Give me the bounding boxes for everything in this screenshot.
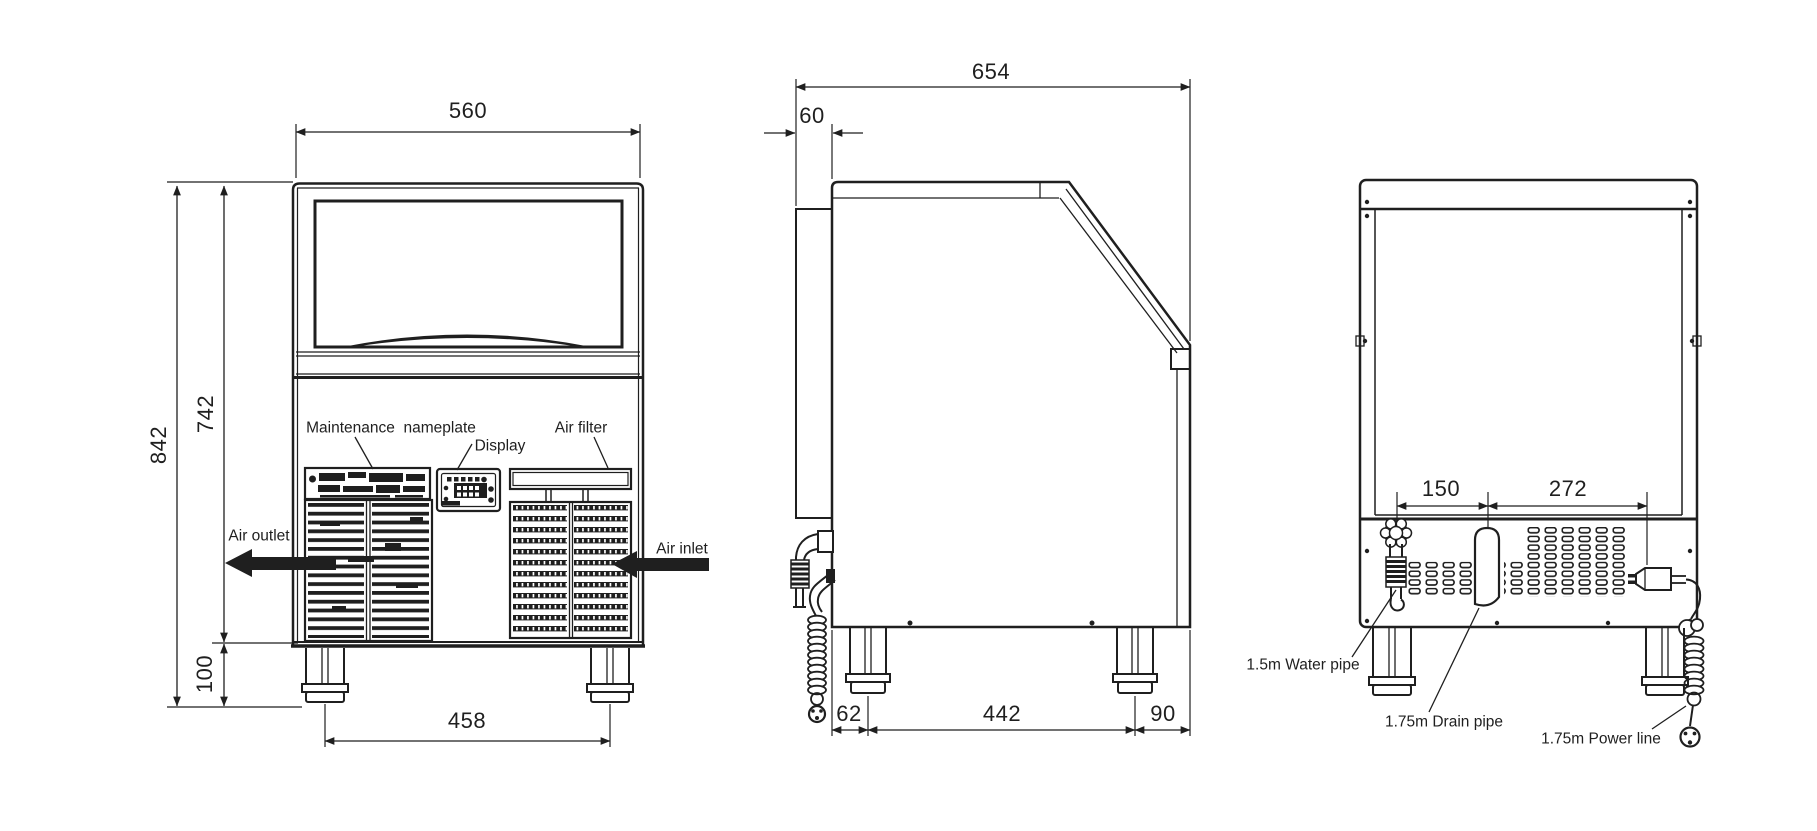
side-body-outline (832, 182, 1190, 627)
dim-side-leg-to-front-label: 90 (1150, 703, 1175, 725)
dim-side-back-to-leg-label: 62 (836, 703, 861, 725)
front-legs (302, 648, 633, 702)
dim-front-leg-span-label: 458 (448, 710, 486, 732)
drain-pipe-label: 1.75m Drain pipe (1385, 714, 1503, 730)
air-inlet-label: Air inlet (656, 541, 708, 557)
rear-legs (1369, 628, 1688, 695)
side-back-panel (796, 209, 832, 518)
maintenance-nameplate-label: Maintenance nameplate (306, 420, 476, 436)
rear-view (1352, 180, 1704, 747)
technical-drawing-ice-machine: 560 842 742 100 458 Maintenance nameplat… (0, 0, 1817, 831)
dim-front-heights (167, 182, 302, 707)
dim-side-leg-span-label: 442 (983, 703, 1021, 725)
dim-side-depth-label: 654 (972, 61, 1010, 83)
dim-front-width (296, 124, 640, 178)
air-outlet-label: Air outlet (228, 528, 289, 544)
dim-rear-water-drain-label: 150 (1422, 478, 1460, 500)
dim-front-leg-height-label: 100 (194, 655, 216, 693)
line-art (0, 0, 1817, 831)
dim-front-height-total-label: 842 (148, 426, 170, 464)
dim-front-width-label: 560 (449, 100, 487, 122)
power-line-label: 1.75m Power line (1541, 731, 1661, 747)
dim-side-back-panel-label: 60 (799, 105, 824, 127)
side-legs (846, 628, 1157, 693)
air-outlet-grille (305, 500, 432, 641)
side-view (764, 79, 1190, 736)
display-label: Display (475, 438, 526, 454)
air-inlet-grille (510, 502, 631, 638)
air-filter-label: Air filter (555, 420, 608, 436)
water-pipe-label: 1.5m Water pipe (1246, 657, 1359, 673)
rear-drain-pipe (1475, 528, 1499, 605)
dim-side-back-panel (764, 124, 863, 179)
dim-front-height-body-label: 742 (195, 395, 217, 433)
dim-rear-drain-power-label: 272 (1549, 478, 1587, 500)
